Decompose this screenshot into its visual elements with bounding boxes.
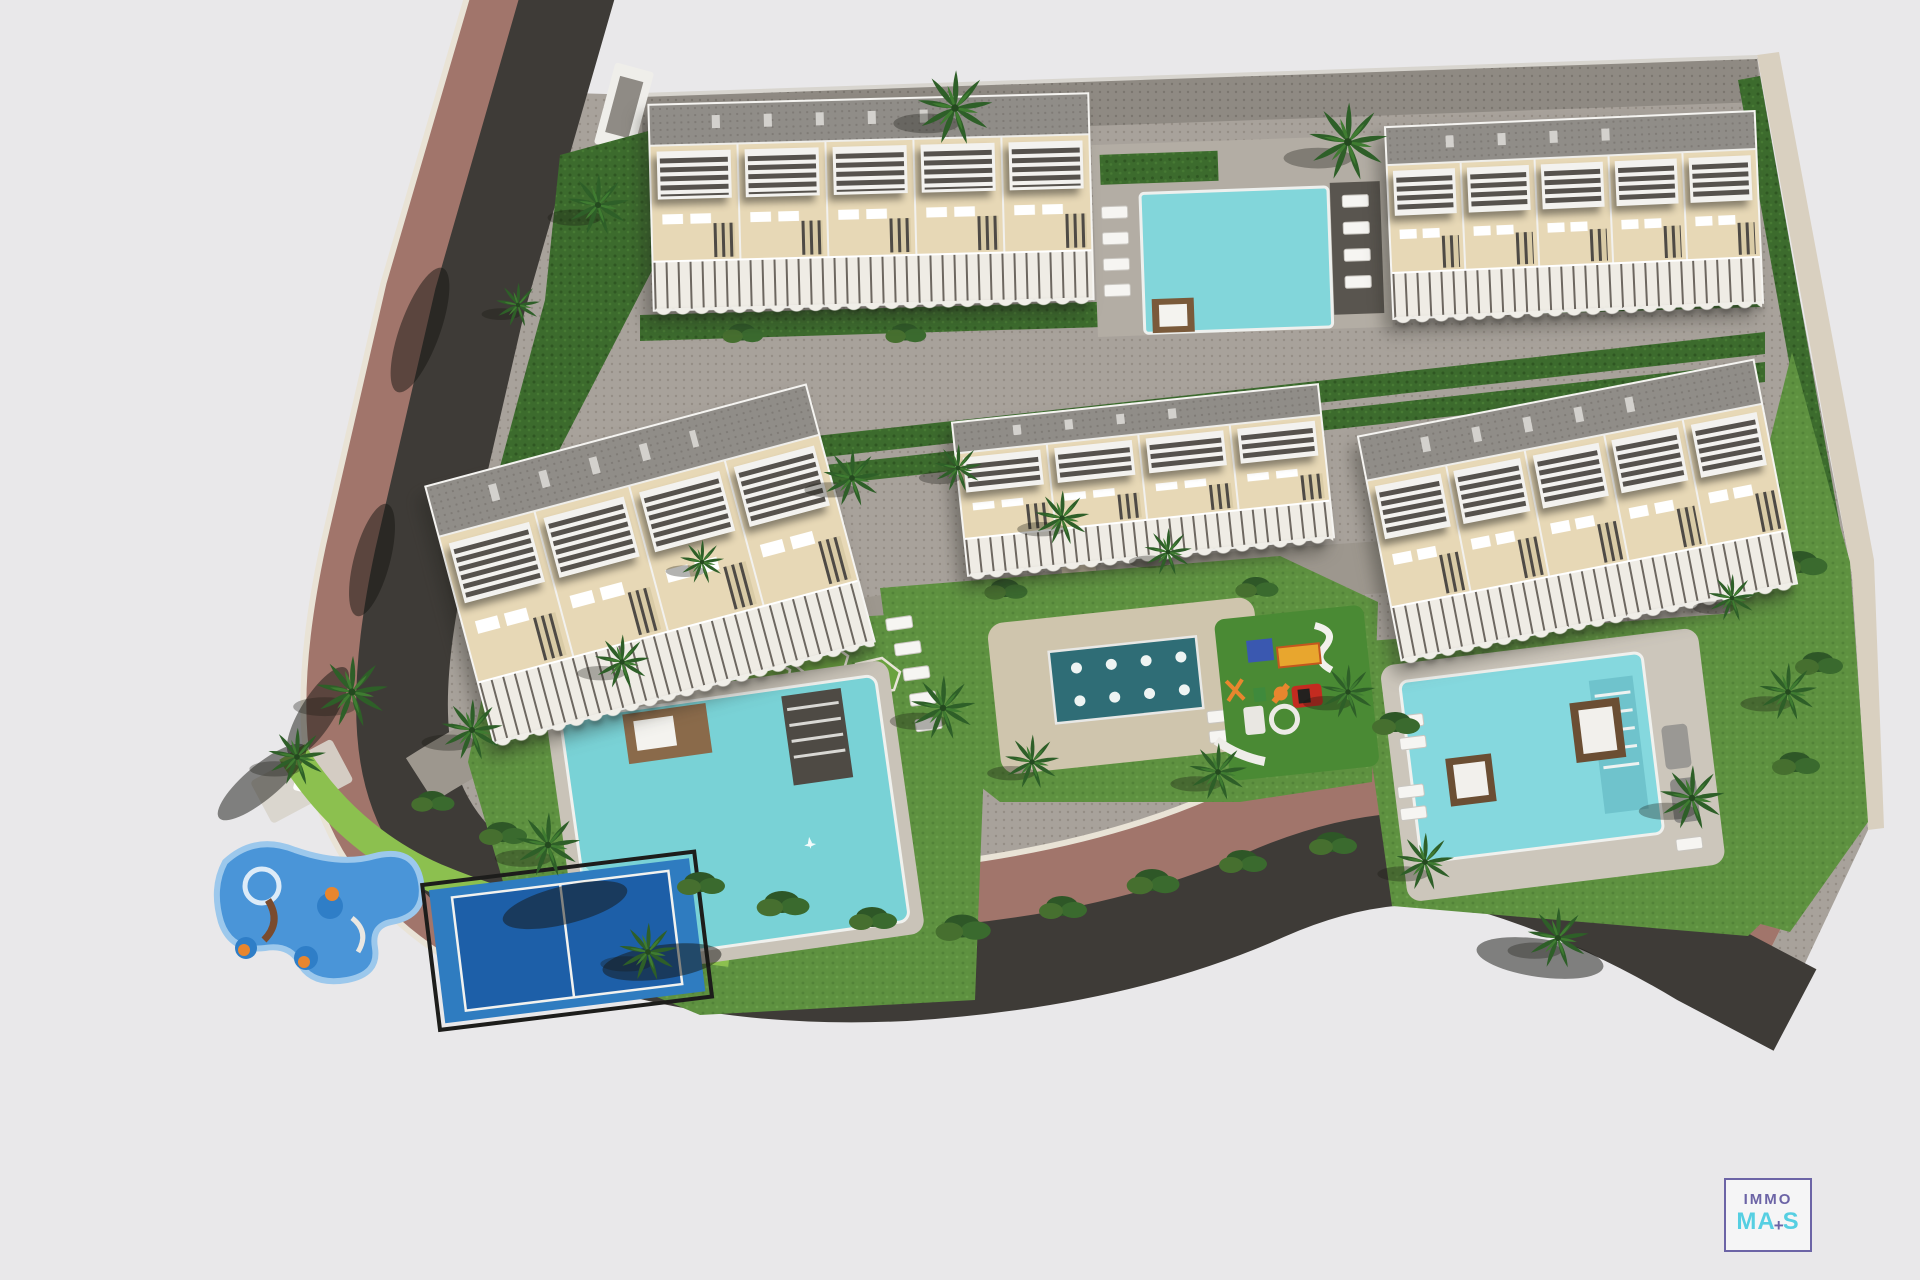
logo-line2: MA+S (1726, 1210, 1810, 1234)
townhouse-bay (914, 137, 1005, 254)
climbing-frame (1277, 643, 1321, 667)
paddle-court (422, 852, 712, 1030)
townhouse-bay (1002, 135, 1091, 252)
townhouse-bay (956, 445, 1056, 538)
townhouse-bay (1388, 163, 1467, 272)
townhouse-bay (650, 144, 741, 261)
splash-pool-water (1049, 636, 1204, 723)
townhouse-bay (1609, 153, 1688, 262)
logo-line1: IMMO (1726, 1192, 1810, 1207)
townhouse-bays (650, 135, 1091, 261)
townhouse-bay (1231, 416, 1329, 509)
townhouse-bay (1048, 435, 1148, 528)
east-pool-area (1379, 627, 1726, 902)
townhouse-bay (1462, 160, 1541, 269)
building-top-left (647, 92, 1094, 311)
townhouse-bays (1388, 150, 1760, 272)
play-canopy (1246, 638, 1274, 663)
kids-water-playground (217, 844, 422, 981)
townhouse-bay (738, 142, 829, 259)
townhouse-bay (1536, 156, 1615, 265)
aerial-render: IMMO MA+S (0, 0, 1920, 1280)
balcony-row (653, 249, 1092, 309)
playground-area (1204, 604, 1380, 782)
picnic-bench (1243, 705, 1266, 735)
townhouse-bay (826, 140, 917, 257)
townhouse-bay (1683, 150, 1760, 259)
building-top-right (1384, 110, 1764, 320)
pool-hedge (1100, 151, 1219, 185)
rooftop-pool-area (1091, 135, 1393, 337)
townhouse-bay (1139, 425, 1239, 518)
immomas-logo: IMMO MA+S (1724, 1178, 1812, 1252)
